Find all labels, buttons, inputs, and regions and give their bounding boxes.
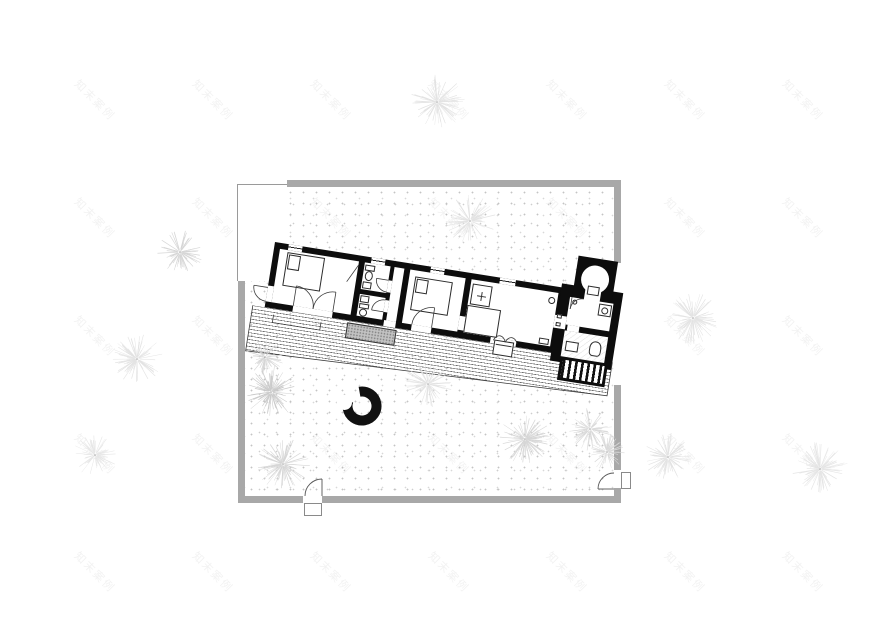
south-gate-arc [305,479,322,496]
east-gate-arc [598,473,614,489]
site-plan-drawing: 知末案例知末案例知末案例知末案例知末案例知末案例知末案例知末案例知末案例知末案例… [0,0,880,622]
plant-leaf [505,337,518,344]
plant-leaf [493,335,506,342]
fire-pit-notch [337,395,352,410]
deck-step-outline [272,315,321,330]
